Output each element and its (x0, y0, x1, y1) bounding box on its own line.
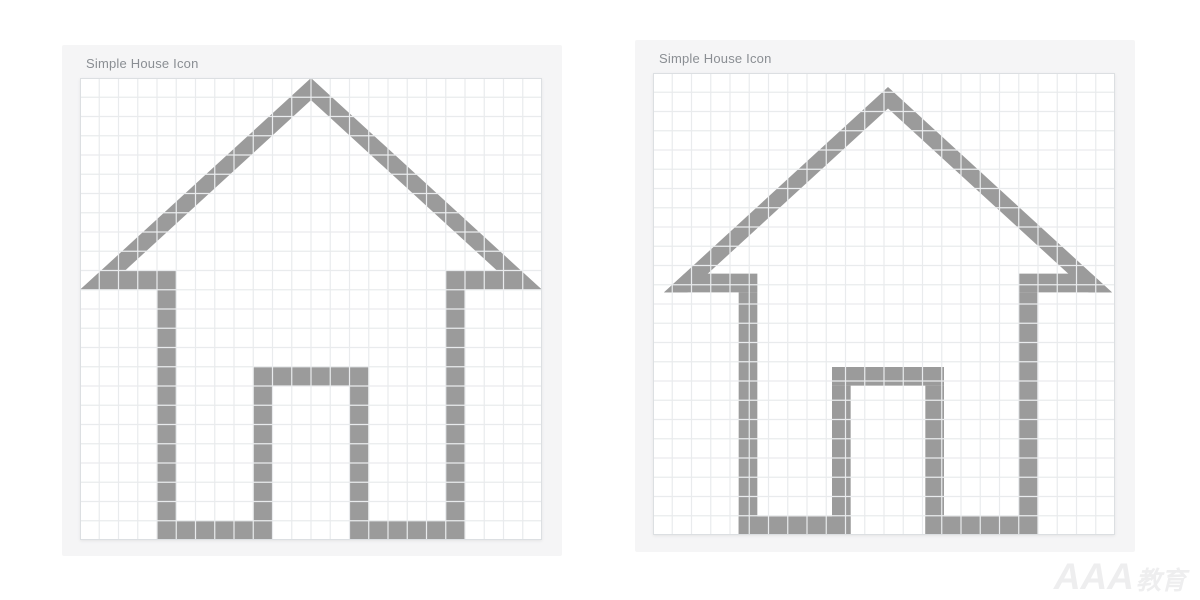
pixel-grid-card (653, 73, 1115, 535)
house-wall-left (739, 292, 758, 535)
house-door-top (832, 367, 944, 386)
house-wall-right (1019, 292, 1038, 535)
site-watermark: AAA教育 (1054, 556, 1186, 598)
watermark-text: AAA (1054, 556, 1134, 597)
artboard-left: Simple House Icon (62, 45, 562, 556)
pixel-grid-card (80, 78, 542, 540)
house-wall-left (157, 290, 176, 540)
house-door-left (832, 386, 851, 535)
watermark-suffix: 教育 (1136, 567, 1186, 595)
pixel-grid-canvas (653, 73, 1115, 535)
house-wall-right (446, 290, 465, 540)
pixel-grid-canvas (80, 78, 542, 540)
design-canvas: Simple House Icon Simple House Icon AAA教… (0, 0, 1200, 600)
artboard-title: Simple House Icon (86, 56, 199, 72)
artboard-title: Simple House Icon (659, 51, 772, 67)
artboard-right: Simple House Icon (635, 40, 1135, 552)
